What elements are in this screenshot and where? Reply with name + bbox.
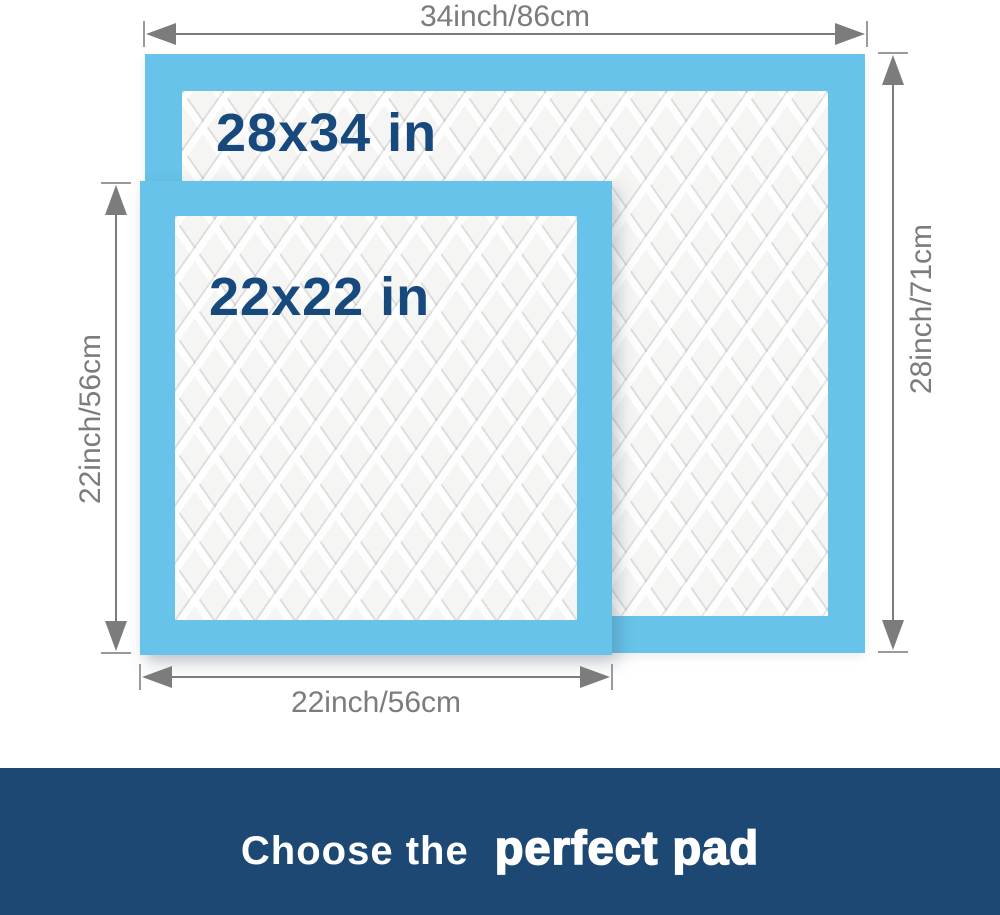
banner-text: Choose the perfect pad xyxy=(241,820,759,875)
small-pad-size-label: 22x22 in xyxy=(209,266,430,328)
dimension-tick xyxy=(143,21,145,47)
dimension-tick xyxy=(866,21,868,47)
arrowhead-right-icon xyxy=(580,666,610,688)
arrow-line xyxy=(115,208,118,628)
banner-highlight: perfect pad xyxy=(495,820,759,875)
arrow-line xyxy=(892,78,895,627)
arrowhead-down-icon xyxy=(105,621,127,651)
arrowhead-up-icon xyxy=(105,185,127,215)
dimension-tick xyxy=(878,651,908,653)
arrow-line xyxy=(165,676,587,679)
large-pad-width-dimension-label: 34inch/86cm xyxy=(355,0,655,34)
arrowhead-left-icon xyxy=(146,23,176,45)
large-pad-size-label: 28x34 in xyxy=(216,102,437,164)
dimension-tick xyxy=(611,664,613,690)
banner: Choose the perfect pad xyxy=(0,768,1000,915)
large-pad-height-dimension-arrow xyxy=(880,52,906,653)
arrowhead-right-icon xyxy=(835,23,865,45)
arrowhead-down-icon xyxy=(882,620,904,650)
banner-prefix: Choose the xyxy=(241,829,469,874)
arrowhead-left-icon xyxy=(142,666,172,688)
product-dimension-diagram: 28x34 in 22x22 in 34inch/86cm 28inch/71c… xyxy=(0,0,1000,915)
dimension-tick xyxy=(101,182,131,184)
dimension-tick xyxy=(139,664,141,690)
arrowhead-up-icon xyxy=(882,55,904,85)
dimension-tick xyxy=(101,652,131,654)
small-pad xyxy=(140,181,612,655)
dimension-tick xyxy=(878,52,908,54)
small-pad-width-dimension-label: 22inch/56cm xyxy=(226,686,526,720)
large-pad-height-dimension-label: 28inch/71cm xyxy=(905,199,939,419)
small-pad-height-dimension-label: 22inch/56cm xyxy=(74,309,108,529)
